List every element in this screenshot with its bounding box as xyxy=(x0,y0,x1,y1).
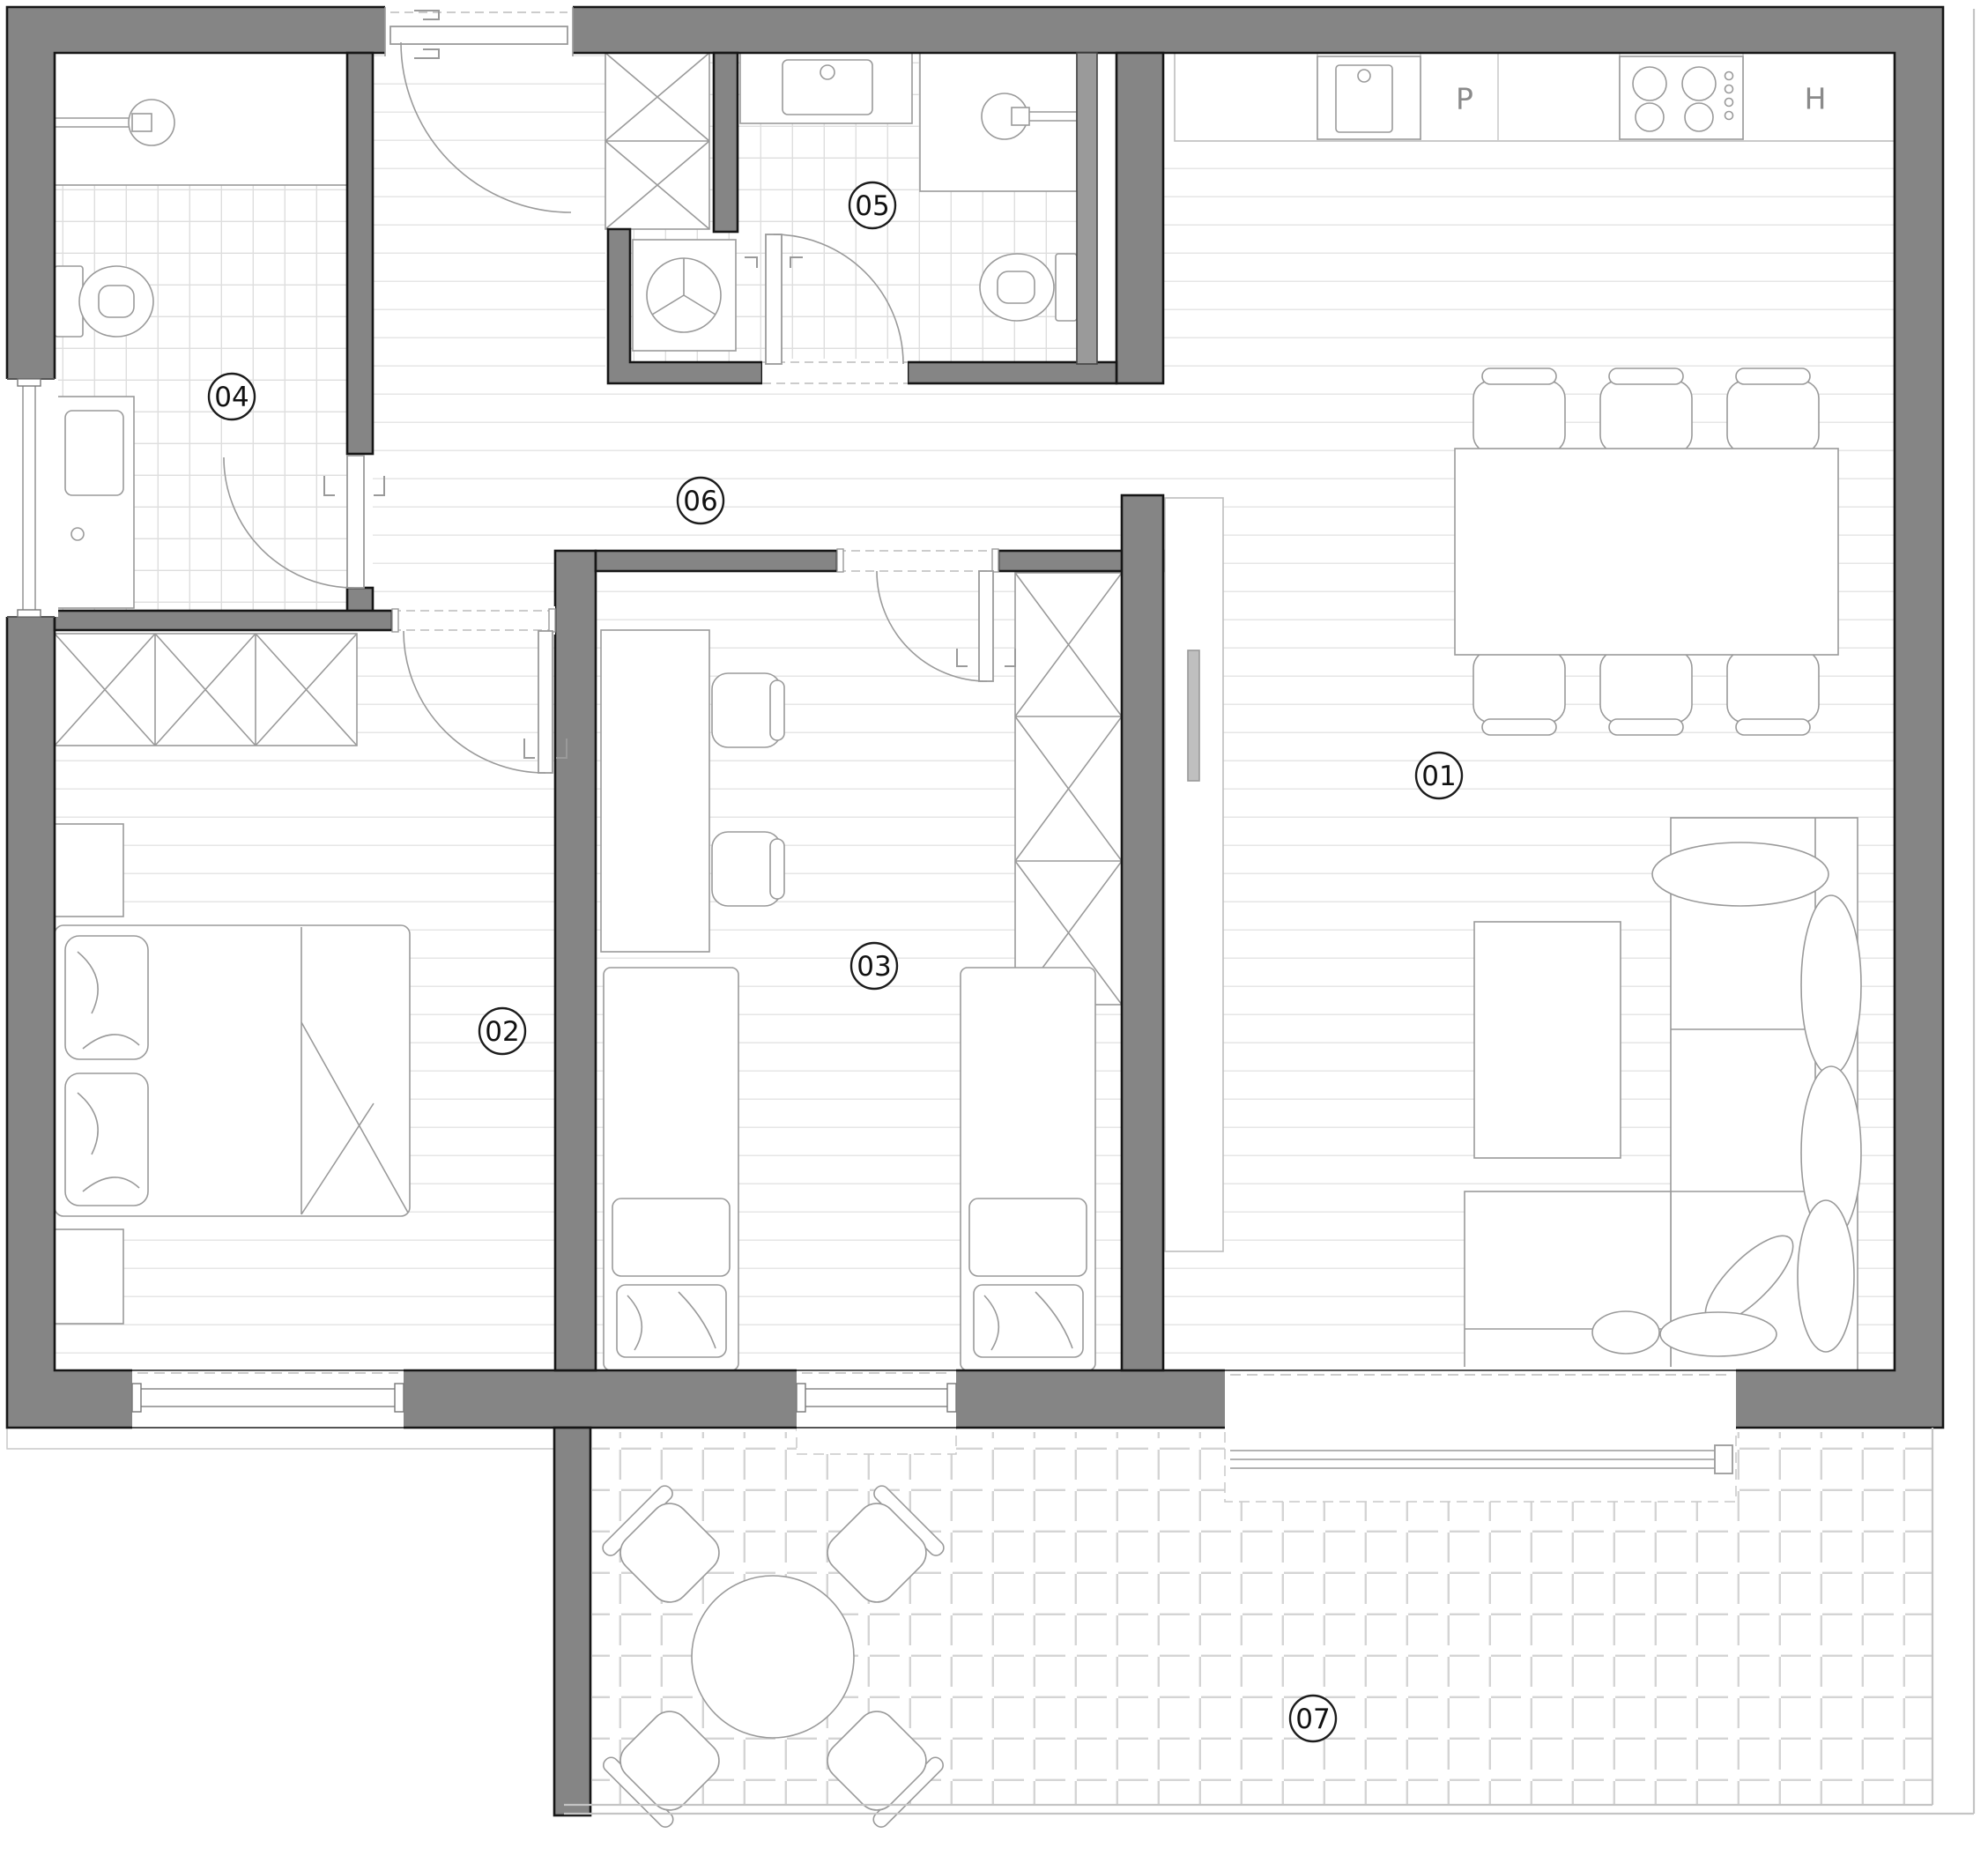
shaft-wall xyxy=(1116,53,1163,383)
bedroom-divider-wall xyxy=(555,551,596,1370)
sofa-corner-cushion xyxy=(1798,1200,1854,1352)
kitchen-sink-tap xyxy=(1358,70,1370,82)
bed-03-right-pillow xyxy=(974,1285,1083,1357)
pillow-02-a xyxy=(65,936,148,1059)
bed-03-right-duvet xyxy=(969,1199,1087,1276)
nightstand-02-a xyxy=(55,824,123,917)
shower-area-04 xyxy=(55,53,347,185)
room-label-02-text: 02 xyxy=(485,1016,519,1048)
slider-sill xyxy=(1225,1428,1736,1502)
bath05-left-wall xyxy=(714,53,738,232)
dining-chair-back xyxy=(1482,719,1556,735)
dining-chair xyxy=(1473,381,1565,453)
bed-03-left-duvet xyxy=(612,1199,730,1276)
dining-chair-back xyxy=(1609,719,1683,735)
terrace-table xyxy=(692,1576,854,1738)
vanity-basin-04 xyxy=(65,411,123,495)
tv-cabinet xyxy=(1165,498,1223,1251)
desk-chair-03-a-back xyxy=(770,680,784,740)
dining-chairs-bottom xyxy=(1473,650,1819,735)
bedroom03-living-wall xyxy=(1122,495,1163,1370)
hall-bedroom03-wall-left xyxy=(596,551,837,571)
floor-plan-page: 01 02 03 04 05 06 07 P H xyxy=(0,0,1988,1863)
dining-chair-back xyxy=(1736,368,1810,384)
burner-3 xyxy=(1636,103,1664,131)
fridge-label: H xyxy=(1805,82,1827,116)
hallway-floor-horizontal xyxy=(605,383,1163,551)
dishwasher-label: P xyxy=(1456,82,1473,116)
nightstand-02-b xyxy=(55,1229,123,1324)
bath05-bottom-wall xyxy=(908,362,1116,383)
coffee-table xyxy=(1474,922,1621,1158)
room-label-06: 06 xyxy=(678,478,723,523)
bedroom03-window xyxy=(797,1367,956,1431)
dining-chair xyxy=(1727,381,1819,453)
sofa-arm-cushion xyxy=(1652,842,1829,906)
shower-head-square-04 xyxy=(132,114,152,131)
dining-table xyxy=(1455,449,1838,655)
dining-chair-back xyxy=(1609,368,1683,384)
toilet-tank-05 xyxy=(1056,254,1077,321)
tv xyxy=(1188,650,1199,781)
window03-sill xyxy=(797,1428,956,1454)
room-label-06-text: 06 xyxy=(683,486,717,517)
sink-tap-05 xyxy=(820,65,835,79)
dining-chair xyxy=(1600,381,1692,453)
room-label-01: 01 xyxy=(1416,753,1462,798)
bath05-right-thin-wall xyxy=(1077,53,1097,364)
vanity-drain-04 xyxy=(71,528,84,540)
bathroom04-window xyxy=(4,379,58,617)
cooktop xyxy=(1620,56,1743,139)
room-label-05-text: 05 xyxy=(855,190,889,222)
bath04-right-wall-upper xyxy=(347,53,373,454)
room-label-07-text: 07 xyxy=(1295,1703,1330,1735)
sofa-bottom-cushion xyxy=(1592,1311,1659,1354)
toilet-seat-04 xyxy=(99,286,134,317)
room-label-07: 07 xyxy=(1290,1696,1336,1741)
bedroom03-door-leaf xyxy=(979,571,993,681)
hallway-floor-vertical xyxy=(373,53,605,611)
dining-chair xyxy=(1473,650,1565,723)
entry-closet xyxy=(605,53,709,229)
terrace-side-wall xyxy=(554,1428,590,1815)
kitchen-counter xyxy=(1175,53,1895,141)
room-label-01-text: 01 xyxy=(1421,761,1456,792)
entrance-door-leaf xyxy=(390,26,567,44)
dining-chair-back xyxy=(1736,719,1810,735)
dining-chair-back xyxy=(1482,368,1556,384)
dining-chair xyxy=(1727,650,1819,723)
bedroom02-window xyxy=(132,1367,404,1431)
toilet-seat-05 xyxy=(998,271,1035,303)
burner-4 xyxy=(1685,103,1713,131)
desk-03 xyxy=(601,630,709,952)
burner-2 xyxy=(1682,67,1716,100)
sofa-back-cushion xyxy=(1801,895,1861,1075)
room-label-05: 05 xyxy=(849,182,895,228)
sofa-bottom-cushion xyxy=(1660,1312,1777,1356)
burner-1 xyxy=(1633,67,1666,100)
room-label-03-text: 03 xyxy=(857,951,891,983)
bedroom02-door-leaf xyxy=(538,631,553,773)
room-label-04-text: 04 xyxy=(214,382,248,413)
bathroom04-door-leaf xyxy=(347,456,364,588)
floor-plan-svg: 01 02 03 04 05 06 07 P H xyxy=(0,0,1988,1863)
room-label-03: 03 xyxy=(851,943,897,989)
hall-bedroom02-wall xyxy=(55,611,392,630)
room-label-02: 02 xyxy=(479,1008,525,1054)
bathroom05-door-leaf xyxy=(766,234,782,364)
dining-chairs-top xyxy=(1473,368,1819,453)
bed-03-left-pillow xyxy=(617,1285,726,1357)
sliding-door-handle xyxy=(1715,1445,1732,1473)
desk-chair-03-b-back xyxy=(770,839,784,899)
shower-head-square-05 xyxy=(1012,108,1029,125)
room-label-04: 04 xyxy=(209,374,255,419)
dining-chair xyxy=(1600,650,1692,723)
